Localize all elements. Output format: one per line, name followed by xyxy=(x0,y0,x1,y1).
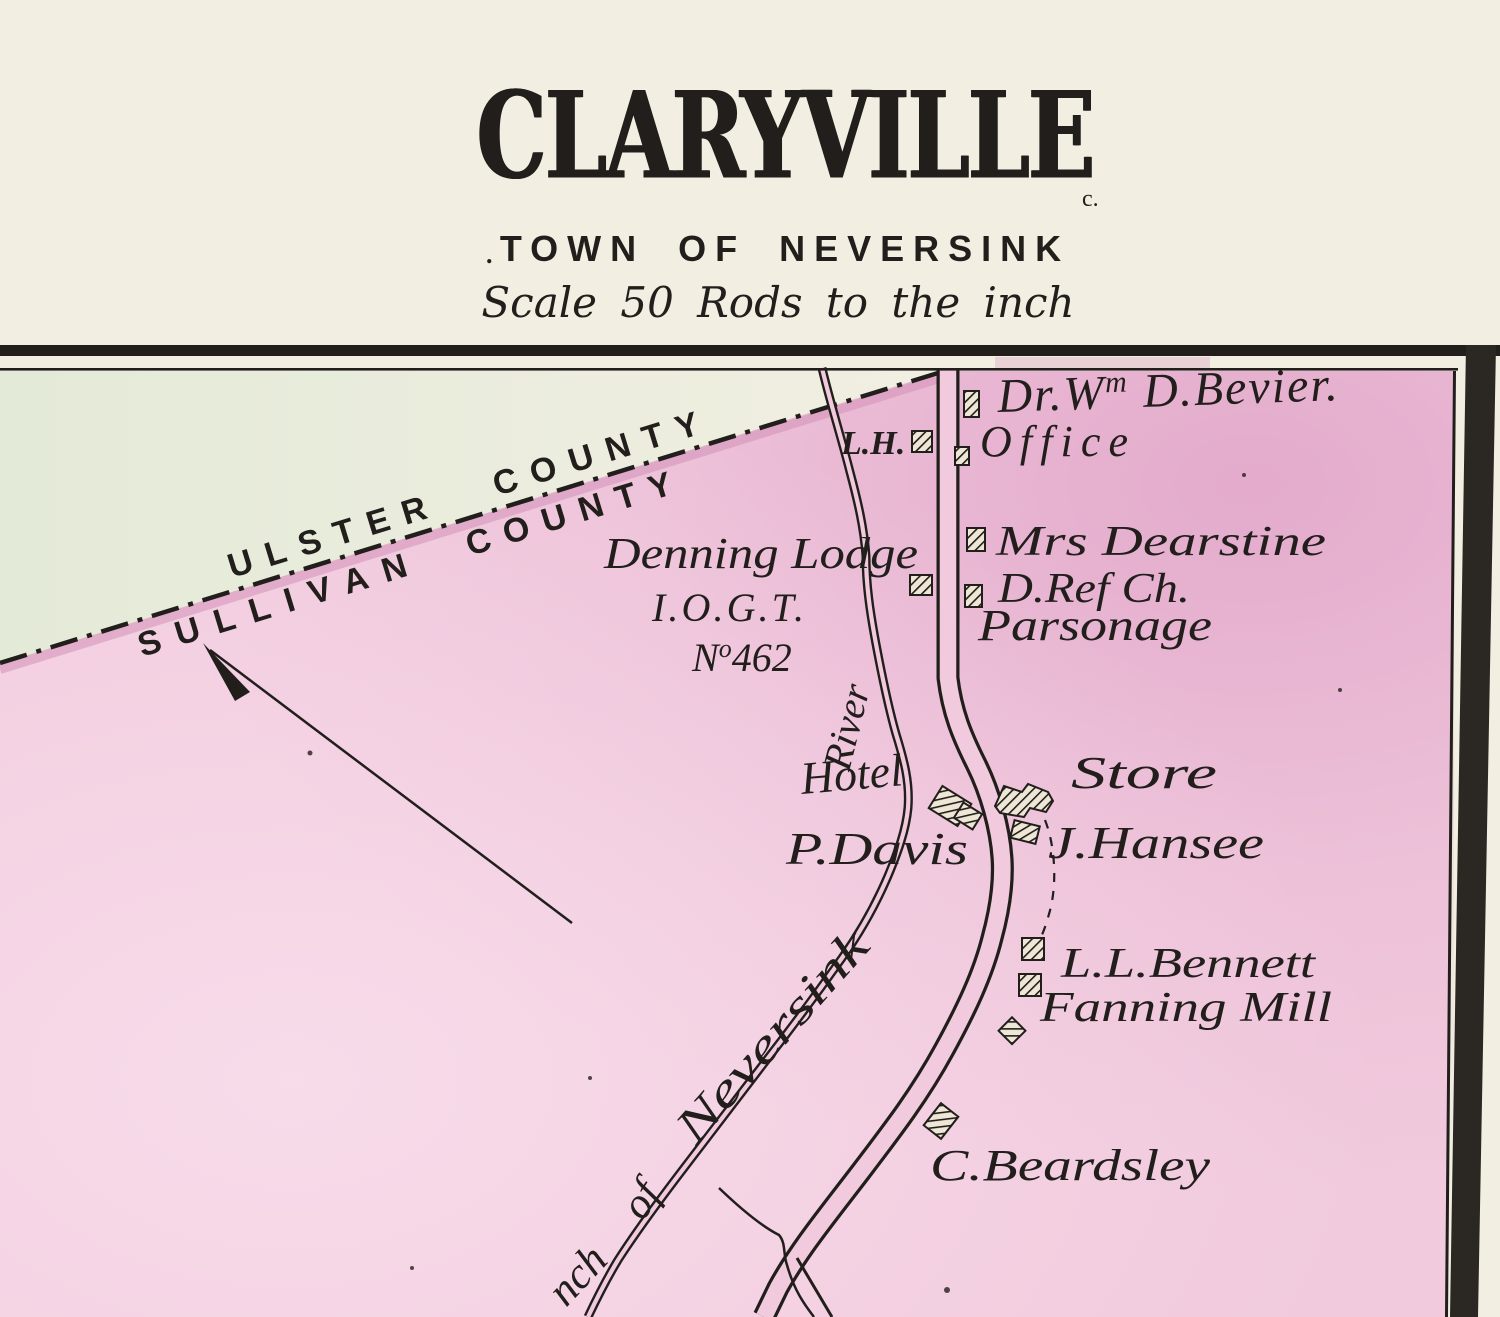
building-lh xyxy=(912,431,932,452)
map-border-right-band xyxy=(1450,345,1496,1317)
label-parsonage: Parsonage xyxy=(977,601,1212,650)
label-lh: L.H. xyxy=(840,425,905,462)
label-store: Store xyxy=(1071,747,1217,798)
page-subtitle: TOWN OF NEVERSINK xyxy=(35,228,1500,270)
label-dearstine: Mrs Dearstine xyxy=(995,519,1326,565)
label-iogt: I.O.G.T. xyxy=(651,585,806,630)
building-bevier xyxy=(964,391,979,417)
label-lodge-number-sup: o xyxy=(719,634,732,663)
building-denning-lodge xyxy=(910,575,932,595)
paper-mark-right: c. xyxy=(1082,186,1099,213)
label-bennett: L.L.Bennett xyxy=(1060,941,1317,987)
page-title: CLARYVILLE xyxy=(65,66,1500,206)
building-bennett-2 xyxy=(1019,974,1041,996)
building-office xyxy=(955,447,969,465)
label-davis: P.Davis xyxy=(785,823,968,874)
label-hansee: J.Hansee xyxy=(1048,817,1264,868)
building-bennett-1 xyxy=(1022,938,1044,960)
claryville-map: ULSTER COUNTY SULLIVAN COUNTY Dr.Wm D.Be… xyxy=(0,345,1500,1317)
building-dearstine xyxy=(967,528,985,551)
label-beardsley: C.Beardsley xyxy=(930,1141,1211,1190)
scale-note: Scale 50 Rods to the inch xyxy=(28,278,1500,327)
map-border-top-thin xyxy=(0,368,1458,371)
map-header: CLARYVILLE TOWN OF NEVERSINK Scale 50 Ro… xyxy=(0,0,1500,345)
paper-mark-left: . xyxy=(486,240,493,270)
label-bevier-post: D.Bevier. xyxy=(1128,358,1340,418)
label-fanning-mill: Fanning Mill xyxy=(1039,985,1332,1031)
label-denning-lodge: Denning Lodge xyxy=(603,529,918,578)
label-bevier-pre: Dr.W xyxy=(996,366,1109,423)
label-lodge-number-num: 462 xyxy=(732,635,792,680)
label-lodge-number-n: N xyxy=(691,635,721,680)
atlas-page: CLARYVILLE TOWN OF NEVERSINK Scale 50 Ro… xyxy=(0,0,1500,1317)
map-border-top-thick xyxy=(0,345,1500,356)
map-panel: ULSTER COUNTY SULLIVAN COUNTY Dr.Wm D.Be… xyxy=(0,345,1500,1317)
label-lodge-number: No462 xyxy=(691,634,792,680)
